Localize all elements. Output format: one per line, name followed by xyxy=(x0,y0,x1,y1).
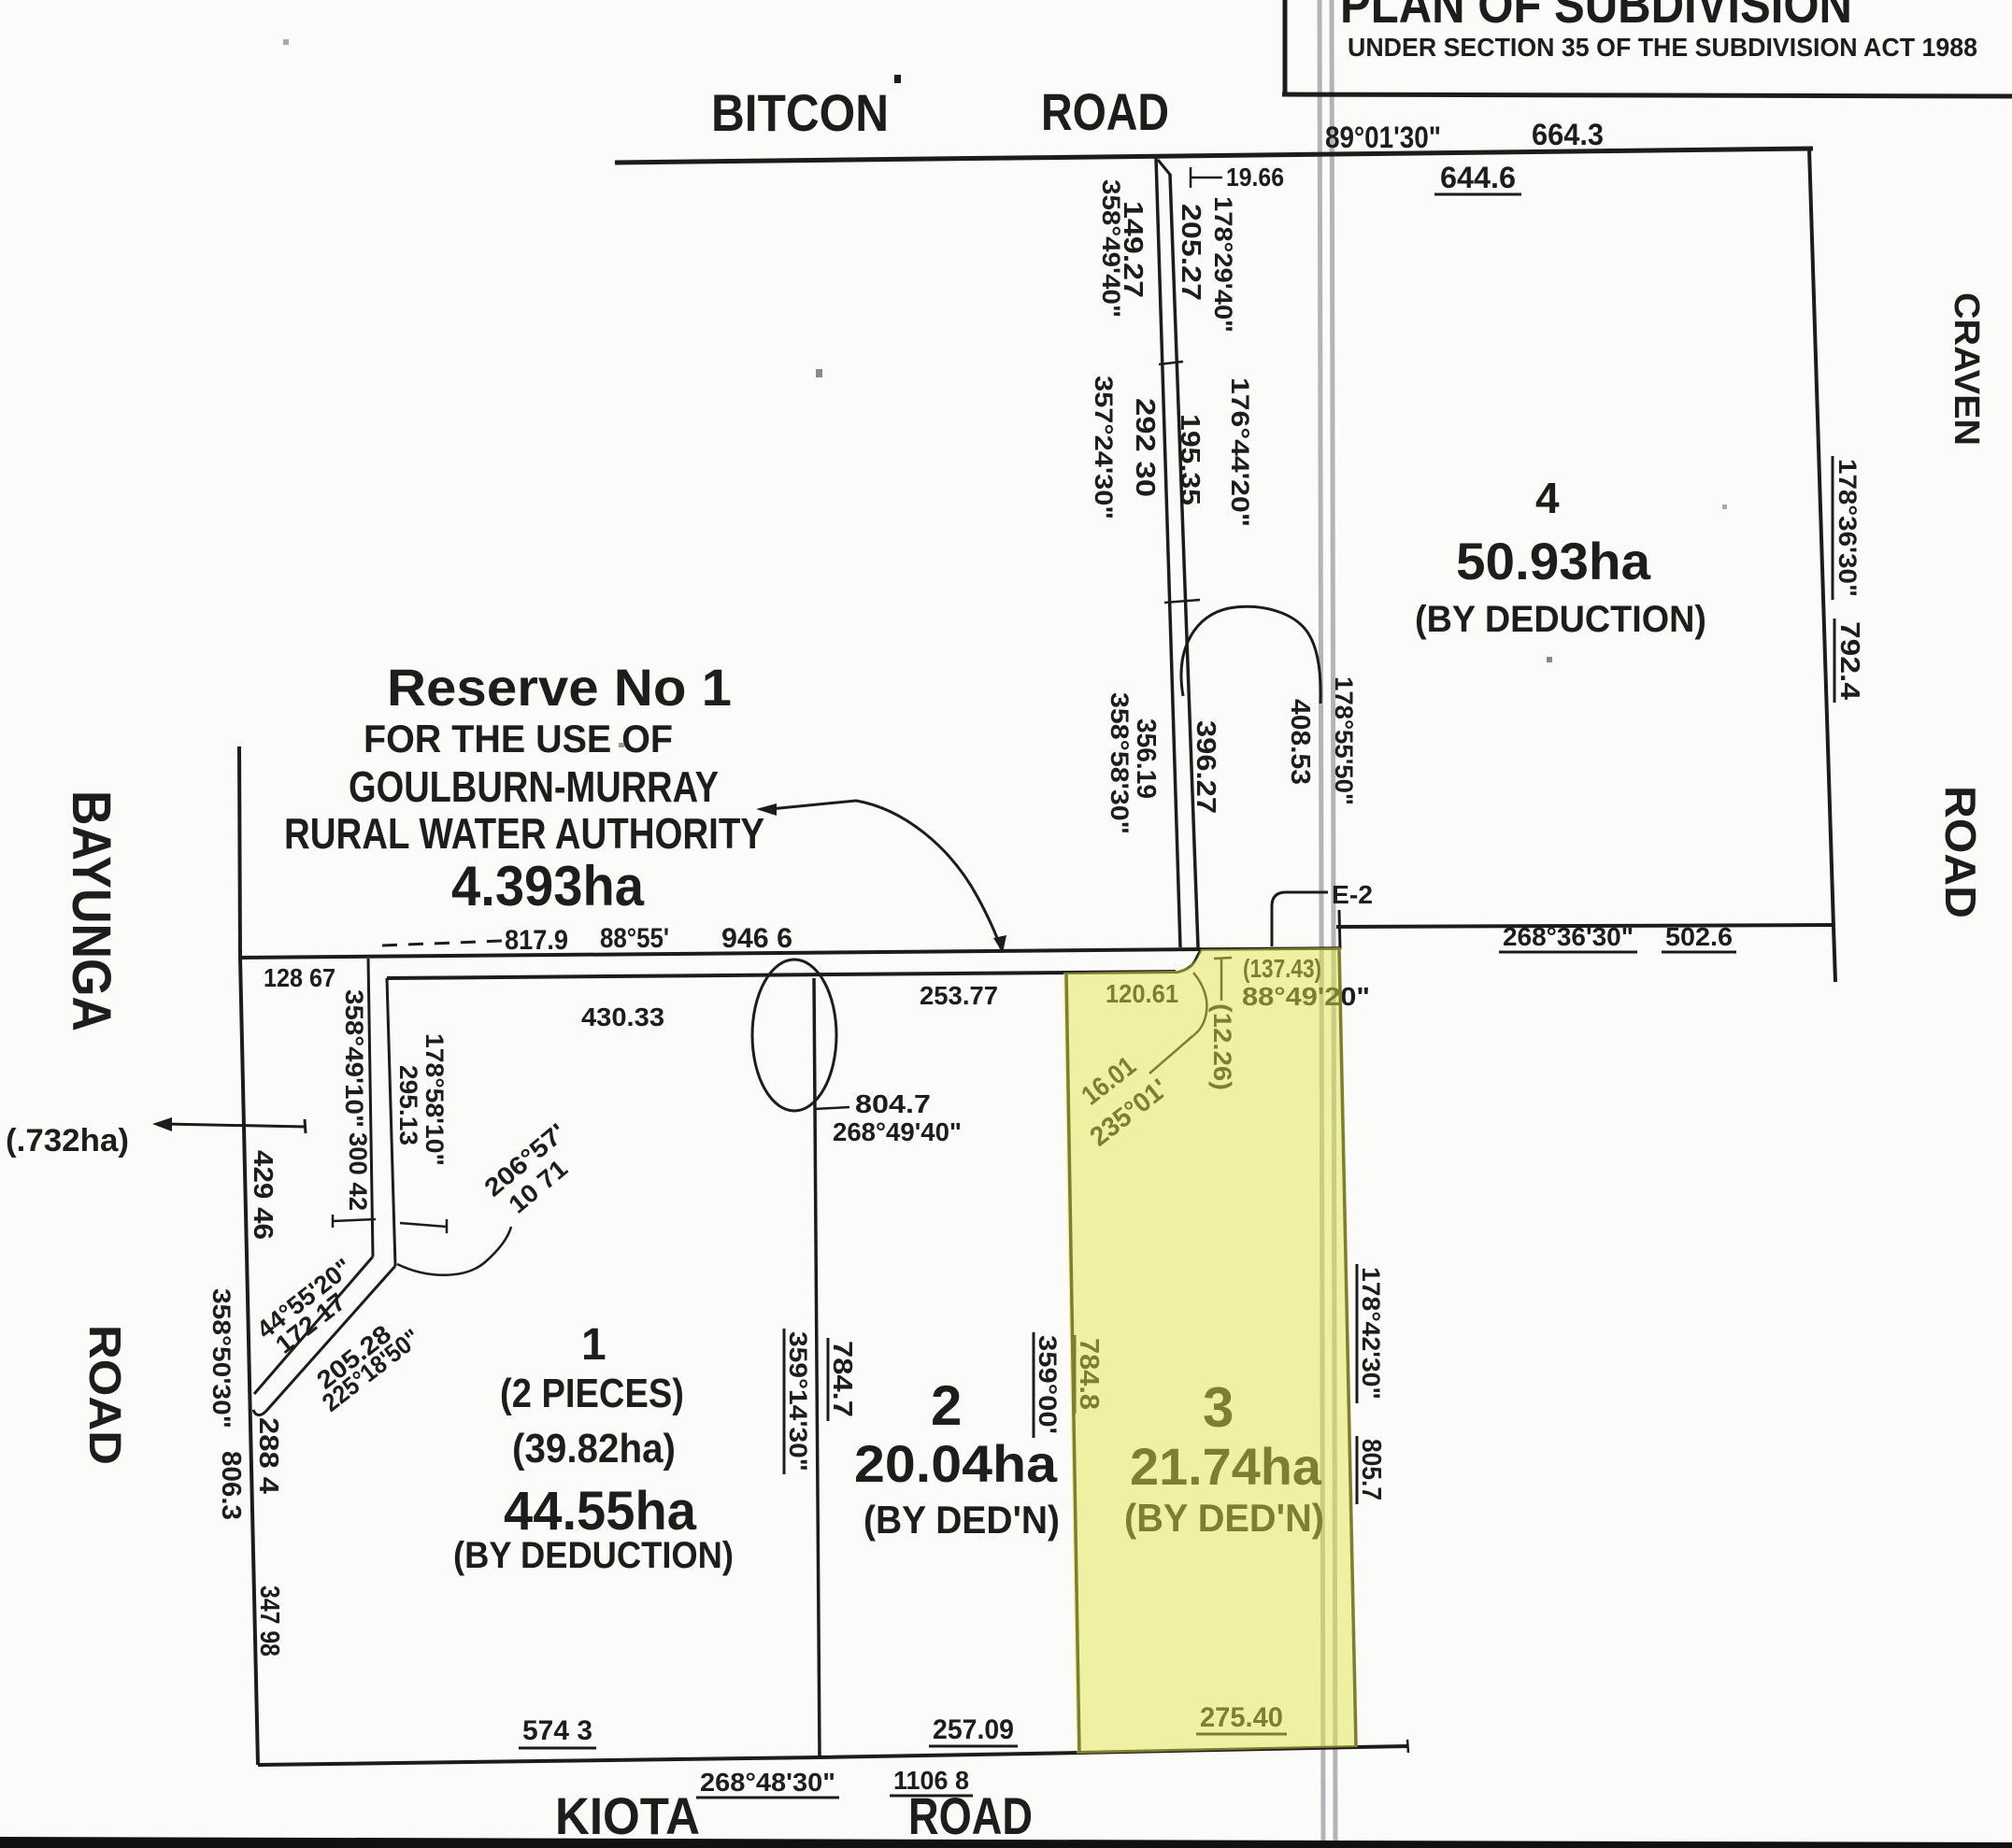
svg-text:357°24'30": 357°24'30" xyxy=(1090,376,1118,519)
svg-text:128 67: 128 67 xyxy=(264,963,335,992)
svg-text:(39.82ha): (39.82ha) xyxy=(512,1426,676,1471)
svg-text:(2 PIECES): (2 PIECES) xyxy=(500,1371,684,1416)
svg-text:Reserve No 1: Reserve No 1 xyxy=(387,658,732,717)
svg-text:429 46: 429 46 xyxy=(248,1150,278,1240)
svg-text:2: 2 xyxy=(931,1374,962,1437)
svg-text:253.77: 253.77 xyxy=(920,981,998,1010)
svg-text:358°50'30": 358°50'30" xyxy=(207,1288,235,1429)
svg-text:502.6: 502.6 xyxy=(1665,922,1733,951)
svg-text:195.35: 195.35 xyxy=(1175,414,1205,505)
svg-text:ROAD: ROAD xyxy=(1936,786,1985,918)
svg-text:CRAVEN: CRAVEN xyxy=(1947,292,1986,446)
svg-text:805.7: 805.7 xyxy=(1356,1439,1386,1500)
svg-text:GOULBURN-MURRAY: GOULBURN-MURRAY xyxy=(349,762,719,811)
svg-text:UNDER SECTION 35 OF THE SUBDIV: UNDER SECTION 35 OF THE SUBDIVISION ACT … xyxy=(1348,33,1977,62)
svg-text:946 6: 946 6 xyxy=(721,923,792,954)
svg-text:288 4: 288 4 xyxy=(253,1417,283,1494)
svg-text:817.9: 817.9 xyxy=(505,925,568,956)
svg-text:4.393ha: 4.393ha xyxy=(451,855,645,917)
svg-text:178°36'30": 178°36'30" xyxy=(1834,459,1862,597)
svg-text:BITCON: BITCON xyxy=(711,83,889,142)
svg-text:178°42'30": 178°42'30" xyxy=(1357,1267,1385,1400)
svg-text:PLAN OF SUBDIVISION: PLAN OF SUBDIVISION xyxy=(1340,0,1852,34)
svg-text:347 98: 347 98 xyxy=(254,1585,284,1656)
svg-text:806.3: 806.3 xyxy=(216,1451,246,1520)
svg-text:ROAD: ROAD xyxy=(79,1325,129,1465)
svg-text:300 42: 300 42 xyxy=(344,1132,372,1211)
svg-text:574 3: 574 3 xyxy=(522,1715,592,1746)
svg-text:292 30: 292 30 xyxy=(1130,398,1160,497)
svg-text:804.7: 804.7 xyxy=(855,1089,931,1118)
svg-text:784.7: 784.7 xyxy=(827,1341,857,1417)
svg-text:BAYUNGA: BAYUNGA xyxy=(61,790,121,1031)
svg-text:268°48'30": 268°48'30" xyxy=(700,1768,835,1797)
svg-text:KIOTA: KIOTA xyxy=(555,1786,700,1845)
svg-text:44.55ha: 44.55ha xyxy=(504,1481,697,1542)
svg-text:1: 1 xyxy=(581,1320,606,1370)
svg-text:E-2: E-2 xyxy=(1332,880,1373,909)
svg-text:268°36'30": 268°36'30" xyxy=(1503,922,1634,951)
svg-text:295.13: 295.13 xyxy=(394,1065,422,1145)
svg-text:644.6: 644.6 xyxy=(1440,161,1516,194)
svg-text:359°14'30": 359°14'30" xyxy=(784,1331,812,1471)
svg-text:89°01'30": 89°01'30" xyxy=(1325,121,1441,154)
svg-text:356.19: 356.19 xyxy=(1131,718,1161,799)
svg-text:20.04ha: 20.04ha xyxy=(854,1434,1058,1493)
svg-text:ROAD: ROAD xyxy=(908,1786,1033,1845)
svg-text:178°29'40": 178°29'40" xyxy=(1209,196,1237,333)
svg-text:19.66: 19.66 xyxy=(1226,163,1284,192)
svg-text:FOR THE USE OF: FOR THE USE OF xyxy=(364,717,673,761)
svg-text:(.732ha): (.732ha) xyxy=(6,1123,129,1159)
svg-text:178°58'10": 178°58'10" xyxy=(421,1033,449,1166)
svg-text:664.3: 664.3 xyxy=(1532,118,1604,151)
svg-text:176°44'20": 176°44'20" xyxy=(1226,377,1254,527)
svg-text:88°55': 88°55' xyxy=(600,923,669,954)
svg-text:792.4: 792.4 xyxy=(1834,621,1864,700)
svg-text:50.93ha: 50.93ha xyxy=(1456,532,1651,590)
svg-text:257.09: 257.09 xyxy=(933,1714,1014,1745)
svg-text:408.53: 408.53 xyxy=(1285,699,1315,785)
svg-text:RURAL WATER AUTHORITY: RURAL WATER AUTHORITY xyxy=(284,809,764,858)
svg-text:268°49'40": 268°49'40" xyxy=(833,1117,962,1146)
svg-text:359°00': 359°00' xyxy=(1034,1335,1062,1434)
svg-text:149.27: 149.27 xyxy=(1118,201,1148,298)
svg-text:4: 4 xyxy=(1535,474,1560,522)
svg-text:358°58'30": 358°58'30" xyxy=(1106,692,1134,834)
svg-text:396.27: 396.27 xyxy=(1191,720,1220,814)
svg-text:(BY DED'N): (BY DED'N) xyxy=(863,1498,1060,1542)
svg-text:ROAD: ROAD xyxy=(1041,82,1169,141)
svg-text:(BY DEDUCTION): (BY DEDUCTION) xyxy=(453,1535,734,1576)
svg-text:205.27: 205.27 xyxy=(1176,204,1206,301)
svg-text:430.33: 430.33 xyxy=(581,1002,664,1031)
svg-text:178°55'50": 178°55'50" xyxy=(1330,676,1358,805)
svg-text:(BY DEDUCTION): (BY DEDUCTION) xyxy=(1415,599,1706,640)
svg-text:358°49'10": 358°49'10" xyxy=(340,989,368,1128)
